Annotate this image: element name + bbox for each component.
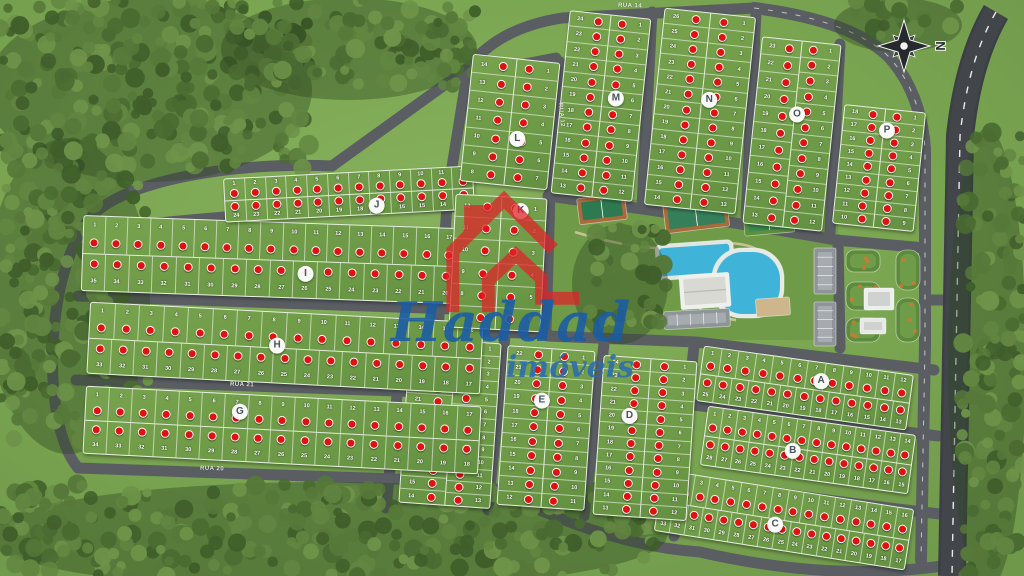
lot-number: 20 — [417, 459, 423, 465]
sold-lot-marker — [554, 439, 564, 449]
sold-lot-marker — [440, 424, 449, 433]
sold-lot-marker — [396, 193, 405, 202]
sold-lot-marker — [715, 47, 725, 57]
lot: 6 — [495, 307, 541, 331]
lot: 8 — [368, 171, 390, 193]
lot-number: 19 — [865, 553, 872, 559]
lot: 7 — [347, 172, 369, 194]
sold-lot-marker — [513, 173, 523, 183]
sold-lot-marker — [719, 17, 729, 27]
block-label: E — [534, 393, 550, 409]
sold-lot-marker — [608, 110, 618, 120]
sold-lot-marker — [488, 152, 498, 162]
lot-number: 24 — [764, 464, 771, 470]
lot-number: 3 — [543, 104, 547, 110]
sold-lot-marker — [526, 466, 536, 476]
sold-lot-marker — [438, 191, 447, 200]
lot-number: 22 — [794, 468, 801, 474]
lot-number: 7 — [357, 175, 360, 181]
lot-number: 16 — [756, 162, 763, 168]
sold-lot-marker — [465, 363, 474, 372]
lot: 10 — [833, 209, 874, 226]
lot-number: 30 — [703, 528, 710, 534]
lot: 24 — [315, 432, 340, 466]
lot: 26 — [248, 347, 273, 383]
sold-lot-marker — [898, 467, 908, 477]
sold-lot-marker — [508, 248, 517, 257]
lot-number: 4 — [295, 178, 298, 184]
lot: 33 — [128, 255, 153, 292]
lot-number: 12 — [477, 98, 484, 104]
sold-lot-marker — [112, 239, 121, 248]
sold-lot-marker — [479, 269, 488, 278]
lot-number: 11 — [345, 322, 351, 328]
lot: 1 — [89, 303, 114, 339]
lot: 9 — [259, 222, 282, 259]
lot: 18 — [454, 440, 479, 474]
sold-lot-marker — [156, 240, 165, 249]
lot-number: 6 — [223, 315, 226, 321]
lot-blocks-layer: 1234567891011122524232221201918171615141… — [0, 0, 1024, 576]
sold-lot-marker — [393, 441, 402, 450]
lot: 12 — [498, 489, 541, 506]
sold-lot-marker — [791, 200, 801, 210]
lot-number: 29 — [208, 449, 214, 455]
sold-lot-marker — [707, 123, 717, 133]
sold-lot-marker — [689, 510, 699, 520]
sold-lot-marker — [583, 107, 593, 117]
lot-number: 1 — [546, 68, 550, 74]
lot-number: 15 — [419, 203, 425, 209]
sold-lot-marker — [627, 426, 637, 436]
sold-lot-marker — [824, 457, 834, 467]
lot: 33 — [106, 421, 131, 455]
lot-number: 16 — [398, 204, 404, 210]
block-N: 2625242322212019181716151412345678910111… — [644, 8, 756, 215]
sold-lot-marker — [267, 244, 276, 253]
sold-lot-marker — [534, 350, 544, 360]
lot-number: 21 — [767, 401, 774, 407]
sold-lot-marker — [772, 162, 782, 172]
lot-number: 10 — [303, 403, 309, 409]
lot-number: 1 — [713, 412, 717, 418]
lot: 11 — [334, 316, 360, 352]
sold-lot-marker — [394, 421, 403, 430]
lot-number: 16 — [424, 234, 430, 240]
lot: 18 — [349, 193, 371, 215]
lot-number: 2 — [827, 64, 831, 70]
sold-lot-marker — [515, 155, 525, 165]
lot-number: 8 — [627, 129, 631, 135]
lot-number: 13 — [479, 79, 486, 85]
sold-lot-marker — [831, 396, 841, 406]
lot-number: 10 — [841, 214, 848, 220]
lot-number: 21 — [515, 365, 522, 371]
sold-lot-marker — [428, 479, 438, 489]
lot: 4 — [162, 307, 188, 343]
lot-number: 17 — [466, 412, 472, 418]
lot-number: 28 — [211, 368, 217, 374]
lot-number: 26 — [257, 370, 263, 376]
sold-lot-marker — [418, 361, 427, 370]
sold-lot-marker — [354, 182, 363, 191]
sold-lot-marker — [230, 188, 239, 197]
lot-number: 10 — [462, 247, 468, 253]
lot: 14 — [896, 434, 915, 464]
lot-number: 17 — [606, 452, 613, 458]
lot-number: 9 — [729, 142, 733, 148]
sold-lot-marker — [491, 134, 501, 144]
sold-lot-marker — [461, 394, 471, 404]
lot: 10 — [453, 238, 499, 262]
lot-number: 32 — [674, 523, 681, 529]
lot: 28 — [222, 427, 247, 461]
lot-number: 4 — [715, 483, 719, 489]
lot-number: 13 — [475, 498, 482, 504]
lot-number: 34 — [114, 280, 120, 286]
lot-number: 11 — [477, 473, 483, 479]
lot-number: 10 — [473, 134, 480, 140]
sold-lot-marker — [134, 239, 143, 248]
sold-lot-marker — [333, 246, 342, 255]
lot-number: 16 — [849, 136, 856, 142]
sold-lot-marker — [560, 352, 570, 362]
lot-number: 4 — [634, 68, 638, 74]
lot-number: 14 — [870, 508, 877, 514]
lot-number: 14 — [879, 417, 886, 423]
sold-lot-marker — [599, 186, 609, 196]
block-label: H — [269, 337, 285, 353]
sold-lot-marker — [795, 169, 805, 179]
lot: 13 — [743, 206, 783, 227]
sold-lot-marker — [672, 195, 682, 205]
lot: 30 — [156, 342, 181, 378]
sold-lot-marker — [550, 482, 560, 492]
lot: 14 — [386, 402, 411, 436]
sold-lot-marker — [767, 431, 777, 441]
sold-lot-marker — [819, 512, 829, 522]
lot-number: 11 — [438, 170, 444, 176]
lot-number: 12 — [874, 434, 881, 440]
sold-lot-marker — [549, 496, 559, 506]
lot: 35 — [82, 254, 106, 291]
sold-lot-marker — [821, 531, 831, 541]
sold-lot-marker — [441, 362, 450, 371]
lot-number: 5 — [772, 420, 776, 426]
lot-number: 1 — [233, 181, 236, 187]
lot-number: 21 — [610, 400, 617, 406]
lot: 5 — [177, 392, 202, 426]
sold-lot-marker — [741, 500, 751, 510]
sold-lot-marker — [622, 505, 632, 515]
sold-lot-marker — [704, 512, 714, 522]
lot: 7 — [215, 221, 238, 258]
sold-lot-marker — [92, 406, 101, 415]
lot-number: 8 — [378, 173, 381, 179]
sold-lot-marker — [890, 138, 900, 148]
lot-number: 24 — [304, 373, 310, 379]
sold-lot-marker — [851, 517, 861, 527]
sold-lot-marker — [676, 165, 686, 175]
lot-number: 25 — [280, 372, 286, 378]
sold-lot-marker — [748, 519, 758, 529]
lot-number: 12 — [722, 187, 729, 193]
lot-number: 22 — [667, 74, 674, 80]
sold-lot-marker — [605, 140, 615, 150]
lot: 20 — [407, 437, 432, 471]
sold-lot-marker — [868, 463, 878, 473]
lot-number: 2 — [728, 354, 732, 360]
sold-lot-marker — [726, 497, 736, 507]
sold-lot-marker — [396, 180, 405, 189]
block-M: 242322212019181716151413123456789101112M — [551, 10, 652, 202]
lot-number: 7 — [226, 227, 229, 233]
lot-number: 21 — [765, 77, 772, 83]
sold-lot-marker — [779, 94, 789, 104]
lot-number: 16 — [564, 138, 571, 144]
lot-number: 10 — [571, 485, 578, 491]
sold-lot-marker — [507, 270, 516, 279]
block-label: K — [513, 203, 529, 219]
sold-lot-marker — [799, 138, 809, 148]
lot-number: 3 — [743, 416, 747, 422]
sold-lot-marker — [684, 90, 694, 100]
sold-lot-marker — [178, 241, 187, 250]
sold-lot-marker — [712, 77, 722, 87]
lot-number: 21 — [393, 458, 399, 464]
lot-number: 16 — [467, 328, 473, 334]
sold-lot-marker — [783, 60, 793, 70]
sold-lot-marker — [868, 109, 878, 119]
sold-lot-marker — [861, 175, 871, 185]
lot-number: 22 — [611, 386, 618, 392]
sold-lot-marker — [523, 494, 533, 504]
sold-lot-marker — [719, 515, 729, 525]
lot: 12 — [892, 373, 913, 402]
lot-number: 19 — [336, 208, 342, 214]
lot: 17 — [456, 358, 481, 394]
lot-number: 8 — [258, 401, 261, 407]
lot-number: 2 — [253, 180, 256, 186]
lot-number: 18 — [567, 107, 574, 113]
sold-lot-marker — [494, 98, 504, 108]
lot-number: 9 — [816, 173, 820, 179]
lot-number: 11 — [620, 174, 626, 180]
sold-lot-marker — [311, 246, 320, 255]
sold-lot-marker — [792, 373, 802, 383]
lot-number: 28 — [705, 455, 712, 461]
lot-number: 5 — [822, 111, 826, 117]
sold-lot-marker — [740, 366, 750, 376]
lot-number: 11 — [823, 500, 830, 506]
lot-number: 22 — [350, 375, 356, 381]
lot-number: 17 — [850, 122, 857, 128]
lot-number: 18 — [853, 476, 860, 482]
sold-lot-marker — [91, 425, 100, 434]
sold-lot-marker — [900, 450, 910, 460]
sold-lot-marker — [659, 375, 669, 385]
sold-lot-marker — [768, 195, 778, 205]
sold-lot-marker — [303, 355, 312, 364]
lot-number: 23 — [779, 466, 786, 472]
lot: 24 — [225, 200, 246, 222]
lot-number: 16 — [657, 165, 664, 171]
lot: 16 — [390, 191, 412, 213]
sold-lot-marker — [555, 424, 565, 434]
lot-number: 17 — [511, 423, 518, 429]
sold-lot-marker — [626, 439, 636, 449]
lot-number: 7 — [815, 366, 819, 372]
sold-lot-marker — [454, 482, 464, 492]
lot-number: 19 — [662, 120, 669, 126]
lot-number: 9 — [676, 471, 679, 477]
lot: 21 — [409, 265, 434, 302]
lot-number: 10 — [812, 188, 819, 194]
lot: 24 — [294, 349, 319, 385]
lot-number: 20 — [442, 291, 448, 297]
sold-lot-marker — [585, 92, 595, 102]
lot-number: 10 — [291, 229, 297, 235]
lot-number: 25 — [702, 392, 709, 398]
lot-number: 12 — [369, 323, 375, 329]
lot-number: 31 — [184, 282, 190, 288]
lot-number: 18 — [357, 207, 363, 213]
sold-lot-marker — [121, 325, 130, 334]
lot: 15 — [392, 227, 415, 264]
lot: 21 — [384, 436, 409, 470]
lot-number: 1 — [582, 355, 585, 361]
lot-number: 1 — [829, 49, 833, 55]
sold-lot-marker — [718, 380, 728, 390]
lot-number: 9 — [461, 269, 464, 275]
sold-lot-marker — [691, 14, 701, 24]
lot-number: 15 — [863, 414, 870, 420]
lot-number: 12 — [618, 189, 625, 195]
lot: 32 — [129, 423, 154, 457]
sold-lot-marker — [883, 465, 893, 475]
sold-lot-marker — [694, 492, 704, 502]
sold-lot-marker — [750, 446, 760, 456]
sold-lot-marker — [841, 441, 851, 451]
lot-number: 4 — [174, 313, 177, 319]
block-label: A — [813, 373, 829, 389]
lot-number: 24 — [718, 394, 725, 400]
sold-lot-marker — [892, 112, 902, 122]
lot: 3 — [499, 240, 545, 264]
sold-lot-marker — [301, 417, 310, 426]
lot: 14 — [399, 488, 444, 505]
sold-lot-marker — [334, 183, 343, 192]
lot-number: 5 — [182, 226, 185, 232]
sold-lot-marker — [579, 153, 589, 163]
lot-number: 15 — [847, 149, 854, 155]
sold-lot-marker — [799, 391, 809, 401]
sold-lot-marker — [522, 82, 532, 92]
sold-lot-marker — [254, 434, 263, 443]
sold-lot-marker — [114, 427, 123, 436]
lot: 6 — [327, 173, 349, 195]
lot-number: 6 — [528, 317, 531, 323]
sold-lot-marker — [324, 268, 333, 277]
lot-number: 13 — [357, 232, 363, 238]
sold-lot-marker — [481, 247, 490, 256]
lot-number: 8 — [817, 426, 821, 432]
lot-number: 19 — [419, 379, 425, 385]
lot-number: 17 — [868, 478, 875, 484]
lot: 11 — [454, 216, 500, 240]
sold-lot-marker — [441, 272, 450, 281]
lot-number: 7 — [905, 195, 909, 201]
lot: 27 — [245, 429, 270, 463]
lot: 6 — [211, 309, 237, 345]
lot-number: 6 — [679, 431, 682, 437]
sold-lot-marker — [527, 451, 537, 461]
sold-lot-marker — [772, 505, 782, 515]
lot-number: 6 — [747, 488, 751, 494]
sold-lot-marker — [416, 442, 425, 451]
lot-number: 1 — [101, 309, 104, 315]
lot-number: 32 — [138, 445, 144, 451]
lot-number: 1 — [710, 351, 714, 357]
sold-lot-marker — [115, 407, 124, 416]
sold-lot-marker — [723, 364, 733, 374]
lot: 4 — [154, 390, 179, 424]
lot-number: 1 — [93, 223, 96, 229]
lot-number: 22 — [767, 60, 774, 66]
lot-number: 2 — [125, 310, 128, 316]
lot-number: 5 — [484, 397, 487, 403]
sold-lot-marker — [679, 135, 689, 145]
sold-lot-marker — [97, 323, 106, 332]
lot-number: 13 — [895, 419, 902, 425]
lot-number: 7 — [732, 112, 736, 118]
lot-number: 18 — [660, 135, 667, 141]
lot: 9 — [389, 170, 411, 192]
sold-lot-marker — [437, 178, 446, 187]
lot-number: 12 — [671, 510, 678, 516]
lot: 23 — [245, 199, 267, 221]
lot: 15 — [892, 463, 911, 493]
lot-number: 8 — [248, 228, 251, 234]
sold-lot-marker — [506, 292, 515, 301]
lot-number: 15 — [402, 233, 408, 239]
sold-lot-marker — [702, 168, 712, 178]
lot: 7 — [235, 310, 261, 346]
lot: 15 — [409, 404, 434, 438]
lot: 15 — [411, 190, 433, 212]
sold-lot-marker — [708, 423, 718, 433]
lot-number: 1 — [533, 207, 536, 213]
sold-lot-marker — [244, 331, 253, 340]
lot-number: 4 — [757, 418, 761, 424]
sold-lot-marker — [895, 405, 905, 415]
lot-number: 25 — [777, 539, 784, 545]
sold-lot-marker — [532, 379, 542, 389]
lot-number: 22 — [574, 47, 581, 53]
sold-lot-marker — [326, 356, 335, 365]
sold-lot-marker — [529, 422, 539, 432]
sold-lot-marker — [160, 262, 169, 271]
lot-number: 18 — [607, 439, 614, 445]
sold-lot-marker — [809, 455, 819, 465]
sold-lot-marker — [866, 122, 876, 132]
lot-number: 10 — [673, 484, 680, 490]
sold-lot-marker — [752, 429, 762, 439]
sold-lot-marker — [885, 178, 895, 188]
lot: 4 — [497, 263, 543, 287]
sold-lot-marker — [616, 34, 626, 44]
sold-lot-marker — [552, 467, 562, 477]
